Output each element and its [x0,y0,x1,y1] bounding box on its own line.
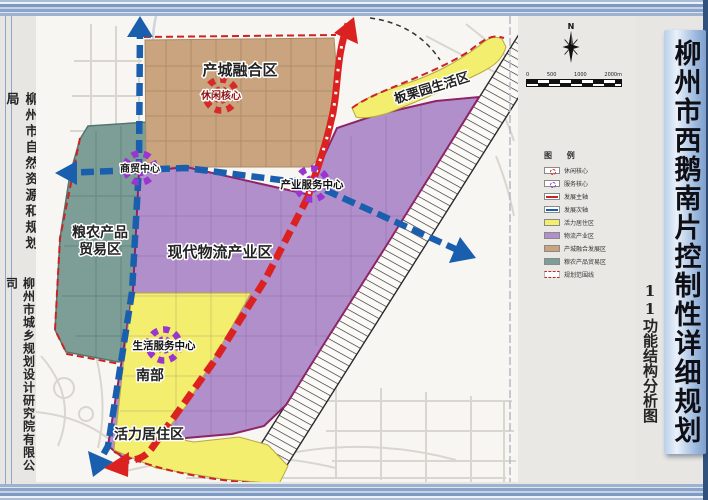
map-title: 柳州市西鹅南片控制性详细规划 [666,39,705,445]
legend-swatch-tan [544,245,560,252]
scale-label: 500 [547,72,557,78]
north-label: N [556,22,586,31]
label-south-line2: 活力居住区 [114,426,184,443]
legend-item: 产城融合发展区 [544,244,630,253]
agency-name-2: 柳州市城乡规划设计研究院有限公司 [4,277,38,480]
map-canvas: 产城融合区 现代物流产业区 粮农产品 贸易区 南部 活力居住区 板栗园生活区 休… [36,16,518,482]
scale-label: 2000m [604,72,622,78]
label-grain-line1: 粮农产品 [72,224,128,241]
legend-swatch-boundary [544,271,560,278]
legend-swatch-yellow [544,219,560,226]
planning-map-svg: 产城融合区 现代物流产业区 粮农产品 贸易区 南部 活力居住区 板栗园生活区 休… [36,16,518,482]
scale-bar-row2 [526,83,622,88]
label-grain-line2: 贸易区 [79,241,121,258]
legend-item: 发展次轴 [544,205,630,214]
title-band: 柳州市西鹅南片控制性详细规划 [664,30,706,454]
legend-swatch-teal [544,258,560,265]
agency-name-1: 柳州市自然资源和规划局 [2,92,40,263]
scale-label: 0 [526,72,529,78]
legend-swatch-axis-blue [544,206,560,213]
legend-item: 规划范围线 [544,270,630,279]
legend-item: 休闲核心 [544,166,630,175]
map-margin-panel: N 0 500 1000 2000m 图 例 休闲核心 服务核心 发展主轴 [518,16,636,482]
label-logistics: 现代物流产业区 [167,243,272,261]
scale-label: 1000 [574,72,587,78]
outer-ring-road-dashed [370,18,440,60]
scale-bar: 0 500 1000 2000m [526,72,622,87]
left-agency-column: 柳州市自然资源和规划局 柳州市城乡规划设计研究院有限公司 [11,92,30,480]
planning-map-page: { "left_panel": { "agency_1": "柳州市自然资源和规… [0,0,708,500]
label-south-line1: 南部 [136,367,164,384]
figure-number-label: 11功能结构分析图 [640,282,661,432]
legend-swatch-core-red [544,167,560,174]
label-core-life-service: 生活服务中心 [133,339,196,352]
label-core-trade: 商贸中心 [120,162,160,175]
label-industry-city: 产城融合区 [202,61,277,79]
label-core-industry-service: 产业服务中心 [281,178,344,191]
legend-item: 活力居住区 [544,218,630,227]
top-frame-band [0,0,708,16]
legend-swatch-core-purple [544,180,560,187]
legend-item: 物流产业区 [544,231,630,240]
scale-labels: 0 500 1000 2000m [526,72,622,78]
compass: N [556,22,586,67]
legend-swatch-purple [544,232,560,239]
bottom-frame-band [0,484,708,500]
legend-swatch-axis-red [544,193,560,200]
compass-rose-icon [560,31,582,63]
legend: 图 例 休闲核心 服务核心 发展主轴 发展次轴 活力居住区 物流产业区 产城融合… [544,150,630,283]
legend-item: 发展主轴 [544,192,630,201]
legend-item: 粮农产品贸易区 [544,257,630,266]
legend-item: 服务核心 [544,179,630,188]
label-core-leisure: 休闲核心 [200,89,241,102]
legend-title: 图 例 [544,150,630,161]
